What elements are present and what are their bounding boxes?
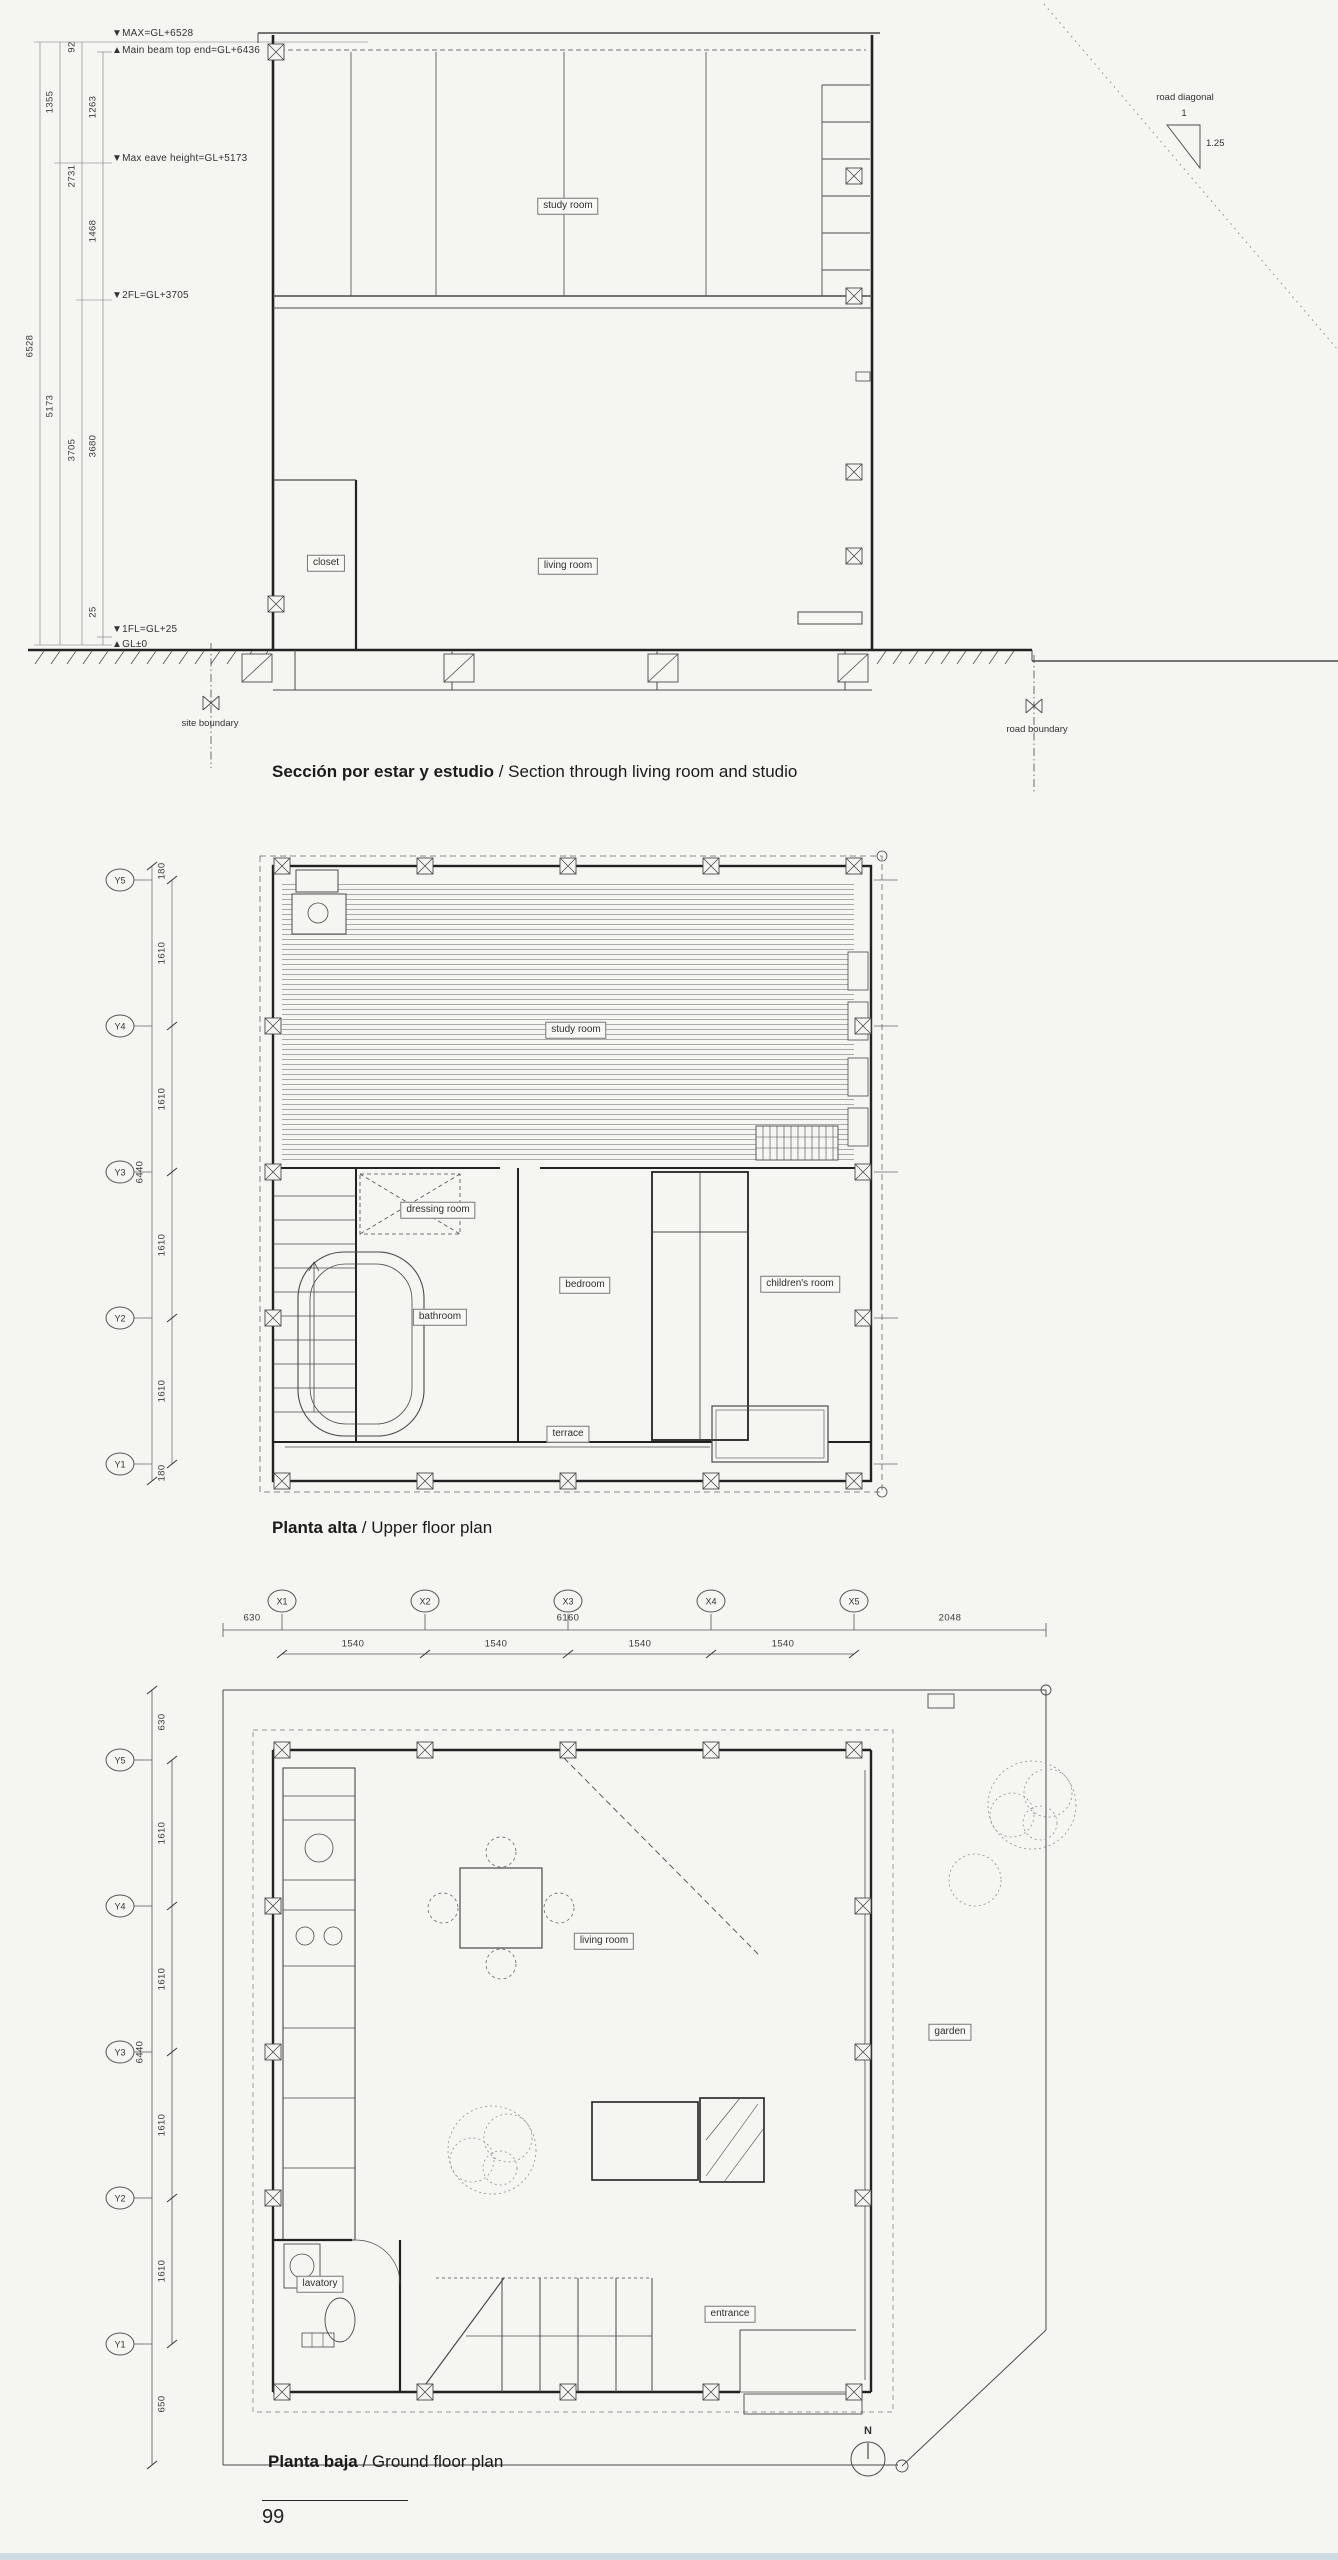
room-label-study-room-plan: study room (545, 1022, 606, 1039)
axis-bubble-y2-upper: Y2 (106, 1307, 135, 1330)
axis-bubble-y2-ground: Y2 (106, 2187, 135, 2210)
dim-25: 25 (88, 606, 99, 617)
annotation-2fl: ▼2FL=GL+3705 (112, 290, 189, 301)
dim-630-top: 630 (157, 1713, 168, 1730)
dim-180-bottom: 180 (157, 1464, 168, 1481)
dim-2048: 2048 (939, 1613, 962, 1624)
ground-plan-title: Planta baja / Ground floor plan (268, 2452, 503, 2472)
dim-total-height: 6528 (25, 335, 36, 358)
room-label-bathroom: bathroom (413, 1309, 467, 1326)
dim-3705: 3705 (67, 439, 78, 462)
section-title: Sección por estar y estudio / Section th… (272, 762, 797, 782)
dim-1610-ground-3: 1610 (157, 2114, 168, 2137)
axis-bubble-x5: X5 (840, 1590, 869, 1613)
room-label-living-room-plan: living room (574, 1933, 634, 1950)
section-title-es: Sección por estar y estudio (272, 762, 494, 781)
scan-edge-artifact (0, 2553, 1338, 2560)
dim-92: 92 (67, 41, 78, 52)
section-title-en: / Section through living room and studio (494, 762, 797, 781)
page-number: 99 (262, 2506, 284, 2529)
dim-1540-3: 1540 (629, 1639, 652, 1650)
dim-1610-upper-1: 1610 (157, 942, 168, 965)
ground-plan-linework (134, 1614, 1076, 2476)
dim-1610-ground-1: 1610 (157, 1822, 168, 1845)
dim-650-bottom: 650 (157, 2395, 168, 2412)
room-label-bedroom: bedroom (559, 1277, 610, 1294)
dim-5173: 5173 (45, 395, 56, 418)
dim-1540-1: 1540 (342, 1639, 365, 1650)
dim-1263: 1263 (88, 96, 99, 119)
room-label-dressing-room: dressing room (400, 1202, 475, 1219)
dim-1610-ground-4: 1610 (157, 2260, 168, 2283)
axis-bubble-y1-upper: Y1 (106, 1453, 135, 1476)
road-boundary-label: road boundary (1006, 724, 1067, 735)
upper-plan-title: Planta alta / Upper floor plan (272, 1518, 492, 1538)
axis-bubble-y5-ground: Y5 (106, 1749, 135, 1772)
axis-bubble-x3: X3 (554, 1590, 583, 1613)
axis-bubble-y5-upper: Y5 (106, 869, 135, 892)
dim-6160: 6160 (557, 1613, 580, 1624)
linework-svg (0, 0, 1338, 2560)
dim-6440-upper: 6440 (135, 1161, 146, 1184)
room-label-lavatory: lavatory (296, 2276, 343, 2293)
dim-1540-2: 1540 (485, 1639, 508, 1650)
north-label: N (864, 2425, 872, 2437)
axis-bubble-y3-upper: Y3 (106, 1161, 135, 1184)
room-label-living-room-section: living room (538, 558, 598, 575)
annotation-main-beam: ▲Main beam top end=GL+6436 (112, 45, 260, 56)
dim-180-top: 180 (157, 862, 168, 879)
room-label-terrace: terrace (546, 1426, 589, 1443)
page-number-rule (262, 2500, 408, 2501)
road-diagonal-run: 1.25 (1206, 138, 1225, 149)
annotation-max-height: ▼MAX=GL+6528 (112, 28, 193, 39)
ground-plan-title-en: / Ground floor plan (358, 2452, 504, 2471)
dim-1468: 1468 (88, 220, 99, 243)
axis-bubble-y1-ground: Y1 (106, 2333, 135, 2356)
room-label-entrance: entrance (705, 2306, 756, 2323)
axis-bubble-x2: X2 (411, 1590, 440, 1613)
dim-6440-ground: 6440 (135, 2041, 146, 2064)
dim-630-left: 630 (243, 1613, 260, 1624)
dim-1610-upper-3: 1610 (157, 1234, 168, 1257)
axis-bubble-x1: X1 (268, 1590, 297, 1613)
section-linework (28, 4, 1338, 792)
book-page: ▼MAX=GL+6528 ▲Main beam top end=GL+6436 … (0, 0, 1338, 2560)
annotation-max-eave: ▼Max eave height=GL+5173 (112, 153, 247, 164)
dim-1355: 1355 (45, 91, 56, 114)
site-boundary-label: site boundary (181, 718, 238, 729)
upper-plan-linework (133, 851, 898, 1497)
room-label-closet: closet (307, 555, 345, 572)
annotation-gl: ▲GL±0 (112, 639, 147, 650)
axis-bubble-x4: X4 (697, 1590, 726, 1613)
upper-plan-title-es: Planta alta (272, 1518, 357, 1537)
dim-3680: 3680 (88, 435, 99, 458)
room-label-childrens-room: children's room (760, 1276, 840, 1293)
room-label-study-room-section: study room (537, 198, 598, 215)
axis-bubble-y4-upper: Y4 (106, 1015, 135, 1038)
road-diagonal-rise: 1 (1181, 108, 1186, 119)
dim-1610-ground-2: 1610 (157, 1968, 168, 1991)
axis-bubble-y3-ground: Y3 (106, 2041, 135, 2064)
road-diagonal-label: road diagonal (1156, 92, 1214, 103)
annotation-1fl: ▼1FL=GL+25 (112, 624, 177, 635)
ground-plan-title-es: Planta baja (268, 2452, 358, 2471)
dim-1610-upper-2: 1610 (157, 1088, 168, 1111)
room-label-garden: garden (928, 2024, 971, 2041)
dim-1540-4: 1540 (772, 1639, 795, 1650)
axis-bubble-y4-ground: Y4 (106, 1895, 135, 1918)
dim-2731: 2731 (67, 165, 78, 188)
upper-plan-title-en: / Upper floor plan (357, 1518, 492, 1537)
dim-1610-upper-4: 1610 (157, 1380, 168, 1403)
